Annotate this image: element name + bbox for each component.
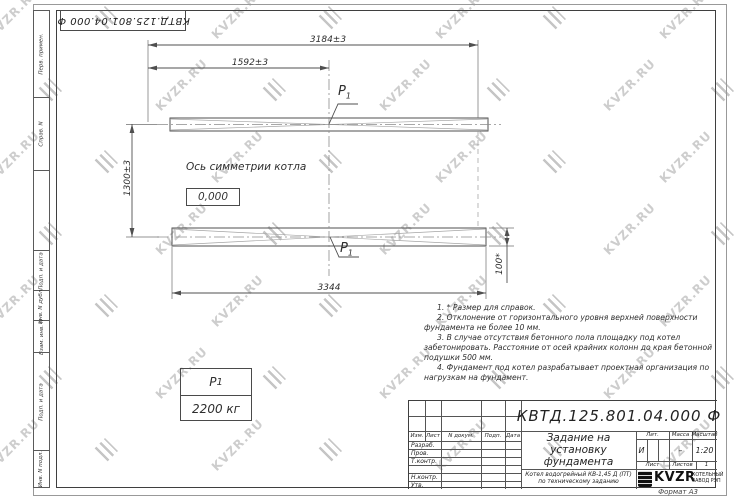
margin-cell-perv-primen: Перв. примен.	[33, 10, 50, 98]
margin-cell-inv-dubl: Инв. N дубл.	[33, 290, 50, 321]
product-name-line: Котел водогрейный КВ-1,45 Д (ПТ)	[525, 472, 631, 479]
margin-cell-sprav-n: Справ. N	[33, 97, 50, 171]
note-2: 2. Отклонение от горизонтального уровня …	[424, 313, 726, 333]
col-podp: Подп.	[481, 431, 505, 441]
note-4: 4. Фундамент под котел разрабатывает про…	[424, 363, 726, 383]
margin-label: Справ. N	[39, 121, 45, 146]
product-name-line: по техническому заданию	[538, 479, 619, 486]
document-title: Задание на установку фундамента	[521, 431, 636, 469]
format-label: Формат А3	[640, 488, 716, 496]
drawing-sheet: KVZR.RUKVZR.RUKVZR.RUKVZR.RUKVZR.RUKVZR.…	[0, 0, 750, 500]
product-name: Котел водогрейный КВ-1,45 Д (ПТ) по техн…	[521, 469, 636, 489]
margin-label: Подп. и дата	[39, 383, 45, 420]
margin-cell-podp-data-1: Подп. и дата	[33, 250, 50, 291]
company-name: КОТЕЛЬНЫЙ ЗАВОД РЭП	[692, 473, 723, 485]
sheets-label: Листов	[669, 461, 696, 469]
dim-text-1300: 1300±3	[122, 156, 134, 200]
load-leader-top	[329, 104, 358, 124]
row-razrab: Разраб.	[409, 441, 443, 449]
mass-value: –	[669, 439, 692, 461]
kvzr-logo-mark-icon	[638, 471, 652, 487]
margin-cell-vzam-inv: Взам. инв. N	[33, 320, 50, 353]
col-ndok: N докум.	[441, 431, 481, 441]
col-data: Дата	[505, 431, 521, 441]
sheets-value: 1	[696, 461, 717, 469]
title-block: КВТД.125.801.04.000 Ф Изм. Лист N докум.…	[408, 400, 717, 489]
lit-label: Лит.	[636, 431, 669, 439]
level-mark-value: 0,000	[198, 191, 228, 203]
margin-label: Инв. N дубл.	[39, 287, 45, 323]
dim-text-1592: 1592±3	[215, 58, 285, 68]
note-1: 1. * Размер для справок.	[424, 303, 726, 313]
row-prov: Пров.	[409, 449, 443, 457]
margin-label: Перв. примен.	[39, 33, 45, 74]
load-point-subscript: 1	[348, 249, 353, 258]
top-designation-stamp: КВТД.125.801.04.000 Ф	[60, 10, 186, 31]
row-tkontr: Т.контр.	[409, 457, 443, 465]
dim-text-3184: 3184±3	[293, 35, 363, 45]
margin-cell-empty	[33, 170, 50, 251]
document-title-line: фундамента	[544, 456, 614, 468]
scale-value: 1:20	[692, 439, 717, 461]
technical-notes: 1. * Размер для справок. 2. Отклонение о…	[424, 303, 726, 383]
load-point-subscript: 1	[346, 92, 351, 101]
load-point-label-bottom: P1	[340, 241, 353, 258]
document-title-line: установку	[550, 444, 607, 456]
top-designation-text: КВТД.125.801.04.000 Ф	[57, 15, 190, 26]
sheet-label: Лист	[636, 461, 669, 469]
load-point-label-top: P1	[338, 84, 351, 101]
title-designation: КВТД.125.801.04.000 Ф	[521, 401, 717, 431]
dim-text-3344: 3344	[294, 283, 364, 293]
load-point-letter: P	[340, 241, 348, 256]
load-name-subscript: 1	[216, 377, 222, 388]
margin-label: Взам. инв. N	[39, 319, 45, 355]
load-name: P	[209, 375, 216, 389]
load-table-value: 2200 кг	[181, 396, 251, 422]
col-izm: Изм.	[409, 431, 425, 441]
symmetry-axis-label: Ось симметрии котла	[186, 161, 306, 173]
load-table-name: P1	[181, 369, 251, 395]
margin-label: Подп. и дата	[39, 252, 45, 289]
mass-label: Масса	[669, 431, 692, 439]
margin-cell-podp-data-2: Подп. и дата	[33, 352, 50, 451]
margin-label: Инв. N подл.	[39, 451, 45, 487]
col-list: Лист	[425, 431, 441, 441]
row-utv: Утв.	[409, 481, 443, 489]
level-mark-box: 0,000	[186, 188, 240, 206]
margin-cell-inv-podl: Инв. N подл.	[33, 450, 50, 488]
lit-value: И	[636, 439, 647, 461]
company-name-line: ЗАВОД РЭП	[692, 479, 723, 485]
note-3: 3. В случае отсутствия бетонного пола пл…	[424, 333, 726, 363]
row-nkontr: Н.контр.	[409, 473, 443, 481]
dim-text-100: 100*	[494, 242, 506, 286]
scale-label: Масштаб	[692, 431, 717, 439]
kvzr-logo-text: KVZR	[654, 470, 696, 485]
document-title-line: Задание на	[547, 432, 611, 444]
load-table: P1 2200 кг	[180, 368, 252, 421]
load-point-letter: P	[338, 84, 346, 99]
